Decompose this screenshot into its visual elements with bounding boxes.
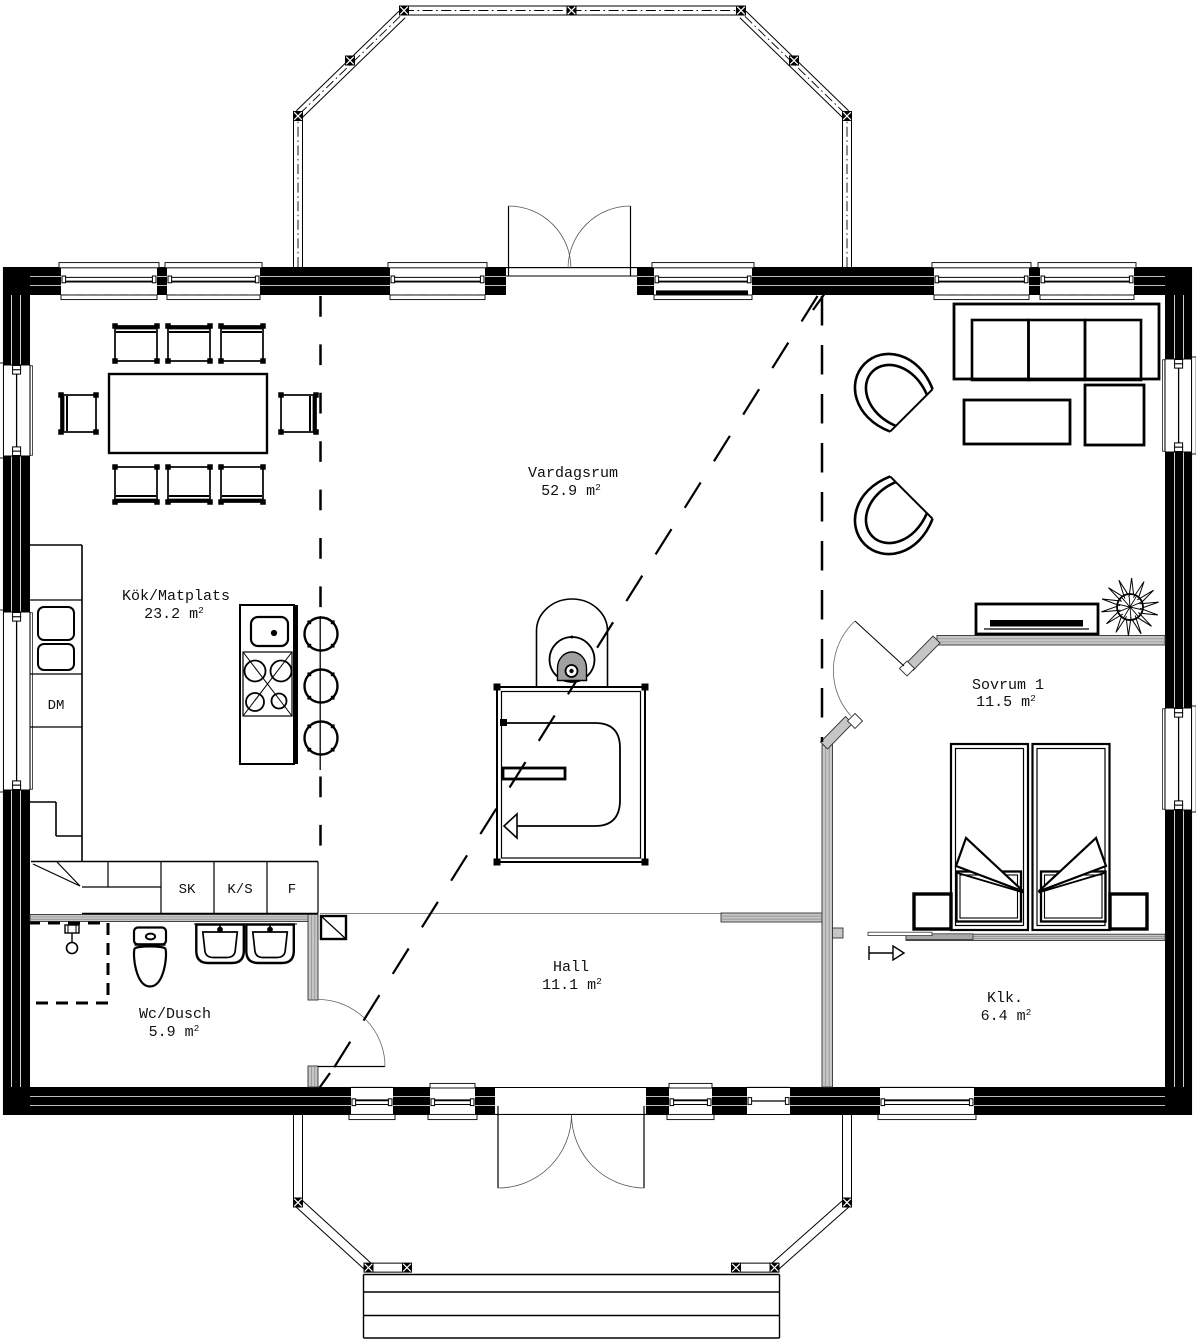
svg-text:11.5 m2: 11.5 m2: [976, 693, 1036, 711]
svg-text:52.9 m2: 52.9 m2: [541, 482, 601, 500]
svg-text:Kök/Matplats: Kök/Matplats: [122, 588, 230, 605]
svg-text:5.9 m2: 5.9 m2: [149, 1023, 200, 1041]
svg-text:K/S: K/S: [227, 882, 252, 898]
svg-text:Hall: Hall: [553, 959, 589, 976]
svg-text:Sovrum 1: Sovrum 1: [972, 677, 1044, 694]
svg-text:DM: DM: [48, 698, 65, 714]
svg-text:Wc/Dusch: Wc/Dusch: [139, 1006, 211, 1023]
svg-text:F: F: [288, 882, 296, 898]
svg-text:Vardagsrum: Vardagsrum: [528, 465, 618, 482]
svg-text:Klk.: Klk.: [987, 990, 1023, 1007]
svg-text:SK: SK: [179, 882, 196, 898]
svg-text:6.4 m2: 6.4 m2: [981, 1007, 1032, 1025]
svg-text:11.1 m2: 11.1 m2: [542, 976, 602, 994]
svg-text:23.2 m2: 23.2 m2: [144, 605, 204, 623]
